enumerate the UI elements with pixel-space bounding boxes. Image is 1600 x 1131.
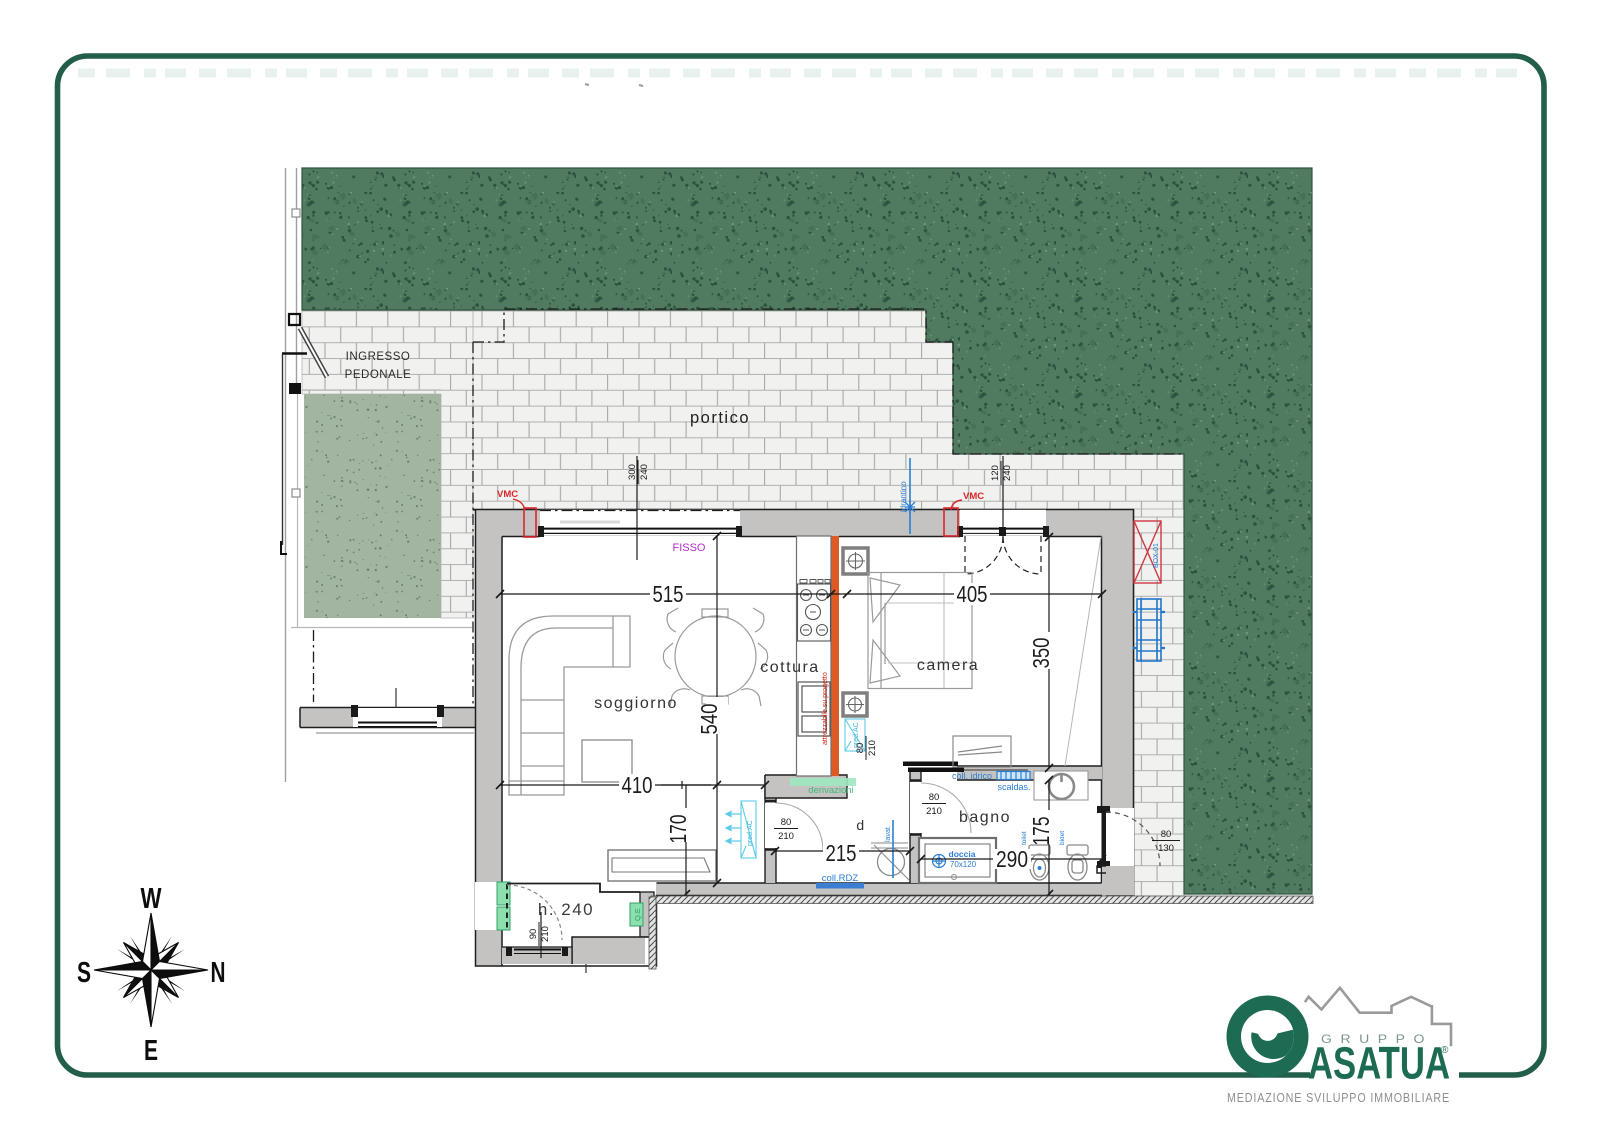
svg-text:240: 240 (1002, 465, 1013, 481)
svg-text:ASATUA: ASATUA (1308, 1038, 1450, 1089)
svg-text:210: 210 (778, 831, 794, 842)
svg-text:120: 120 (990, 465, 1001, 481)
svg-text:130: 130 (1158, 843, 1174, 854)
svg-text:540: 540 (696, 704, 722, 735)
svg-text:coll. idrico: coll. idrico (952, 771, 992, 781)
svg-text:portico: portico (690, 409, 750, 427)
svg-text:scaldas.: scaldas. (997, 782, 1030, 792)
svg-text:290: 290 (996, 846, 1028, 872)
svg-text:doccia: doccia (949, 849, 976, 859)
svg-text:MEDIAZIONE SVILUPPO IMMOBILIAR: MEDIAZIONE SVILUPPO IMMOBILIARE (1227, 1090, 1450, 1105)
svg-text:80: 80 (781, 817, 792, 828)
svg-text:coll.RDZ: coll.RDZ (822, 873, 859, 884)
svg-text:80: 80 (929, 792, 940, 803)
svg-text:bagno: bagno (959, 809, 1011, 826)
svg-text:toilet: toilet (1021, 831, 1028, 845)
svg-text:d: d (856, 817, 865, 833)
svg-text:80: 80 (855, 743, 866, 754)
svg-text:90: 90 (528, 929, 539, 940)
svg-text:W: W (141, 883, 162, 915)
svg-text:215: 215 (826, 840, 857, 866)
svg-text:VMC: VMC (497, 489, 518, 500)
svg-text:bidet: bidet (1059, 831, 1066, 845)
svg-text:lavat.: lavat. (885, 825, 892, 842)
svg-text:210: 210 (540, 926, 551, 942)
svg-text:attrezzabile su progetto: attrezzabile su progetto (822, 672, 829, 745)
svg-text:350: 350 (1028, 638, 1054, 669)
svg-text:®: ® (1441, 1045, 1449, 1056)
svg-text:300: 300 (627, 464, 638, 480)
svg-text:INGRESSO: INGRESSO (346, 351, 411, 363)
svg-text:FISSO: FISSO (672, 542, 705, 554)
svg-text:derivazioni: derivazioni (808, 785, 853, 796)
svg-text:BOX-01: BOX-01 (1153, 543, 1160, 568)
svg-text:h. 240: h. 240 (538, 900, 594, 919)
svg-text:soggiorno: soggiorno (594, 695, 678, 712)
svg-text:240: 240 (639, 464, 650, 480)
svg-text:cottura: cottura (760, 659, 819, 676)
svg-text:PEDONALE: PEDONALE (345, 369, 412, 381)
svg-text:pred.AC: pred.AC (747, 820, 754, 846)
svg-text:VMC: VMC (963, 491, 984, 502)
svg-text:410: 410 (622, 772, 653, 798)
svg-text:E: E (144, 1035, 158, 1067)
svg-text:camera: camera (917, 657, 979, 674)
svg-text:80: 80 (1161, 829, 1172, 840)
svg-text:175: 175 (1028, 817, 1054, 846)
svg-text:210: 210 (926, 806, 942, 817)
svg-text:170: 170 (665, 815, 691, 844)
svg-text:210: 210 (867, 740, 878, 756)
svg-text:N: N (211, 957, 226, 989)
svg-text:405: 405 (957, 581, 988, 607)
svg-text:515: 515 (653, 581, 684, 607)
svg-text:S: S (77, 957, 91, 989)
svg-text:Q.E: Q.E (633, 908, 642, 921)
svg-text:70x120: 70x120 (950, 860, 977, 869)
